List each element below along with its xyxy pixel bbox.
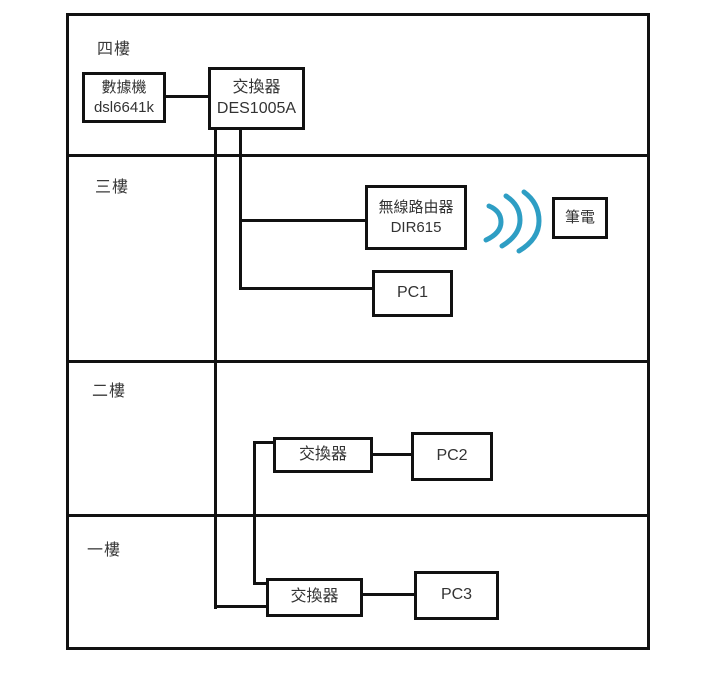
node-pc2-name: PC2 [436, 446, 467, 467]
floor-label-2f: 二樓 [92, 377, 126, 401]
link-switch1f-pc3 [363, 593, 417, 596]
link-3f-to-pc1 [239, 287, 375, 290]
node-switch-4f: 交換器 DES1005A [208, 67, 305, 130]
link-switch4f-down-main [214, 130, 217, 609]
node-wireless-router: 無線路由器 DIR615 [365, 185, 467, 250]
link-switch2f-pc2 [373, 453, 414, 456]
wifi-chevron-small [486, 206, 501, 240]
node-pc2: PC2 [411, 432, 493, 481]
floor-divider-4f-3f [66, 154, 650, 157]
floor-divider-3f-2f [66, 360, 650, 363]
node-switch-1f: 交換器 [266, 578, 363, 617]
node-switch-2f: 交換器 [273, 437, 373, 473]
node-pc3-name: PC3 [441, 585, 472, 606]
node-laptop: 筆電 [552, 197, 608, 239]
node-modem-name: 數據機 [101, 78, 146, 98]
floor-divider-2f-1f [66, 514, 650, 517]
wifi-chevron-medium [502, 196, 520, 246]
node-pc1-name: PC1 [397, 283, 428, 304]
node-wireless-router-name: 無線路由器 [378, 198, 453, 218]
node-switch-2f-name: 交換器 [299, 445, 347, 466]
node-modem-model: dsl6641k [94, 98, 154, 118]
node-pc3: PC3 [414, 571, 499, 620]
floor-label-4f: 四樓 [97, 35, 131, 59]
link-main-to-switch1f [214, 605, 269, 608]
link-3f-to-router [239, 219, 368, 222]
node-laptop-name: 筆電 [565, 208, 595, 228]
node-wireless-router-model: DIR615 [391, 218, 442, 238]
node-switch-4f-model: DES1005A [217, 99, 296, 120]
link-modem-switch4f [166, 95, 208, 98]
link-switch4f-down-3f [239, 130, 242, 290]
node-modem: 數據機 dsl6641k [82, 72, 166, 123]
network-diagram: 四樓 三樓 二樓 一樓 數據機 dsl6641k 交換器 DES1005A 無線… [0, 0, 720, 684]
wifi-signal-icon [480, 185, 550, 257]
node-switch-4f-name: 交換器 [232, 78, 280, 99]
floor-label-1f: 一樓 [87, 536, 121, 560]
node-switch-1f-name: 交換器 [290, 587, 338, 608]
floor-label-3f: 三樓 [95, 173, 129, 197]
link-switch2f-switch1f [253, 441, 256, 585]
node-pc1: PC1 [372, 270, 453, 317]
